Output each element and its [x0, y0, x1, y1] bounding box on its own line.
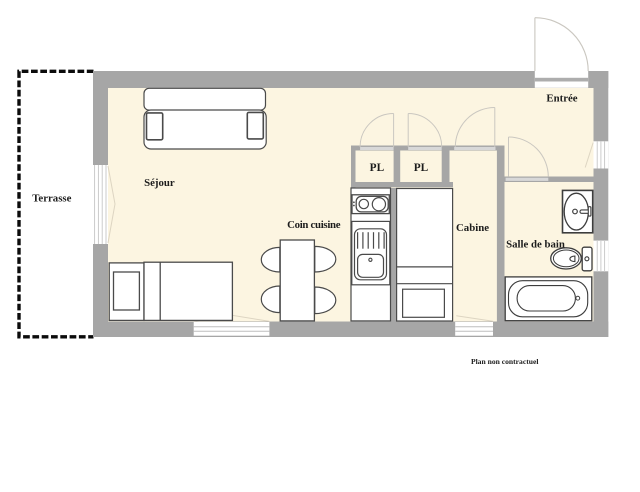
svg-text:Cabine: Cabine	[456, 222, 489, 234]
svg-text:Terrasse: Terrasse	[32, 193, 71, 205]
svg-text:Plan non contractuel: Plan non contractuel	[471, 357, 539, 366]
svg-text:PL: PL	[414, 162, 429, 174]
svg-text:Salle de bain: Salle de bain	[506, 238, 565, 250]
svg-text:Coin cuisine: Coin cuisine	[287, 219, 341, 231]
svg-text:PL: PL	[370, 162, 385, 174]
svg-text:Entrée: Entrée	[546, 93, 577, 105]
svg-text:Séjour: Séjour	[144, 177, 175, 189]
